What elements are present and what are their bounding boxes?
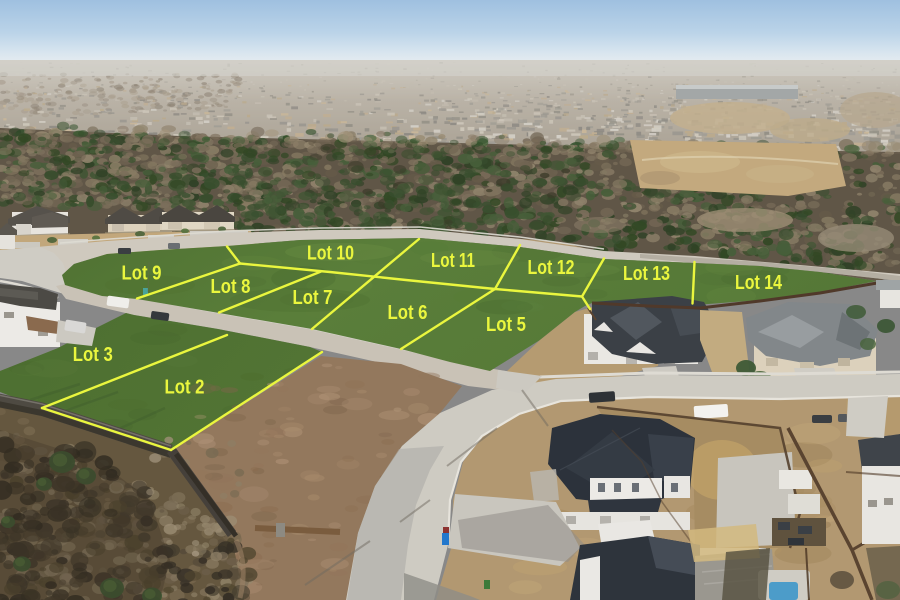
svg-text:Lot 14: Lot 14: [735, 270, 783, 293]
svg-text:Lot 13: Lot 13: [623, 261, 670, 284]
svg-text:Lot 11: Lot 11: [431, 248, 475, 271]
svg-text:Lot 7: Lot 7: [292, 285, 332, 308]
svg-text:Lot 3: Lot 3: [73, 342, 113, 365]
svg-text:Lot 8: Lot 8: [210, 274, 250, 297]
svg-text:Lot 2: Lot 2: [164, 374, 204, 397]
svg-text:Lot 5: Lot 5: [486, 312, 526, 335]
svg-text:Lot 12: Lot 12: [527, 255, 574, 278]
svg-text:Lot 10: Lot 10: [307, 240, 354, 263]
svg-text:Lot 9: Lot 9: [121, 260, 161, 283]
svg-text:Lot 6: Lot 6: [387, 300, 427, 323]
